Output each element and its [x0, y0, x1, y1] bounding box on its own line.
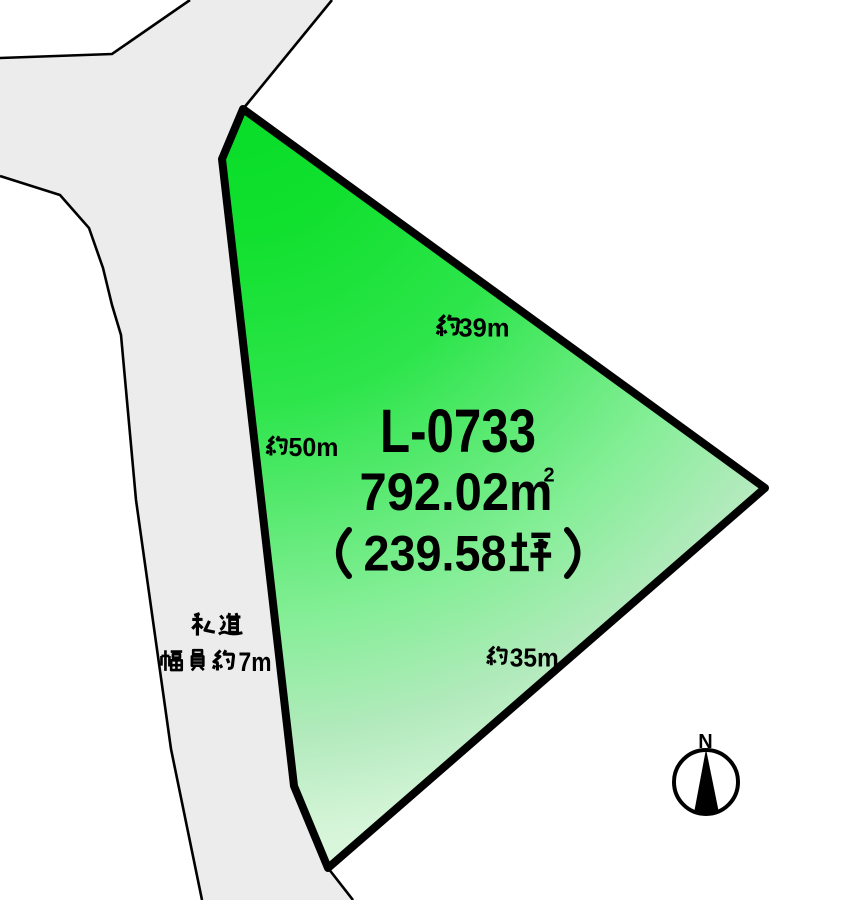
svg-text:50m: 50m [289, 432, 339, 462]
svg-text:239.58: 239.58 [364, 526, 507, 582]
svg-text:2: 2 [543, 465, 554, 487]
svg-text:35m: 35m [510, 643, 559, 673]
svg-text:39m: 39m [459, 313, 510, 343]
svg-text:792.02m: 792.02m [360, 463, 553, 522]
svg-text:7m: 7m [239, 647, 272, 677]
svg-text:N: N [698, 731, 712, 753]
svg-text:L-0733: L-0733 [380, 397, 536, 465]
